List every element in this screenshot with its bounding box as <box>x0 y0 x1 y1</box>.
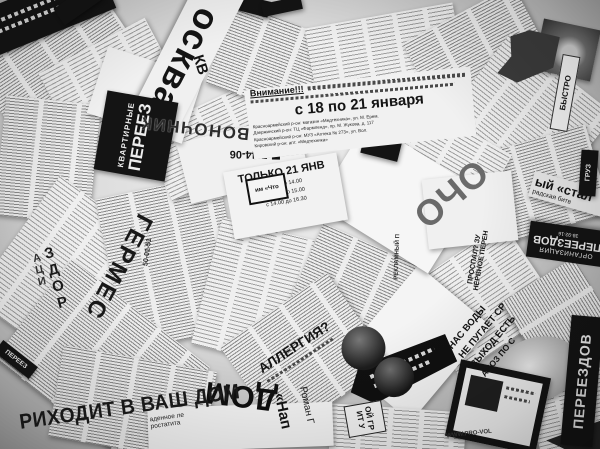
newspaper-collage-photo: осква КВ КВАРТИРНЫЕ ПЕРЕЕЗ ПОЗВОНОЧНИК П… <box>0 0 600 449</box>
web-address-text: WWW.PRO-VOL <box>446 429 492 440</box>
bystro-label: БЫСТРО <box>557 75 572 112</box>
framed-label-text: им «Что <box>255 184 280 194</box>
clipping-oj-gr: ОЙ ГР ИТ У <box>344 400 387 438</box>
gruz-label: ГРУЗ <box>584 164 592 182</box>
clipping-kvartirnye-pereezdy: КВАРТИРНЫЕ ПЕРЕЕЗ <box>94 90 179 181</box>
framed-ad-photo <box>465 375 503 412</box>
pereezdov-vertical-label: ПЕРЕЕЗДОВ <box>570 332 594 429</box>
clipping-gruz: ГРУЗ <box>578 149 598 196</box>
fine-print-lines <box>506 386 536 395</box>
clipping-org-pereezdov: ОРГАНИЗАЦИЯ ПЕРЕЕЗДОВ 38-92-16 <box>526 221 600 268</box>
dark-clipping <box>261 0 303 17</box>
fine-print-lines <box>504 395 531 403</box>
